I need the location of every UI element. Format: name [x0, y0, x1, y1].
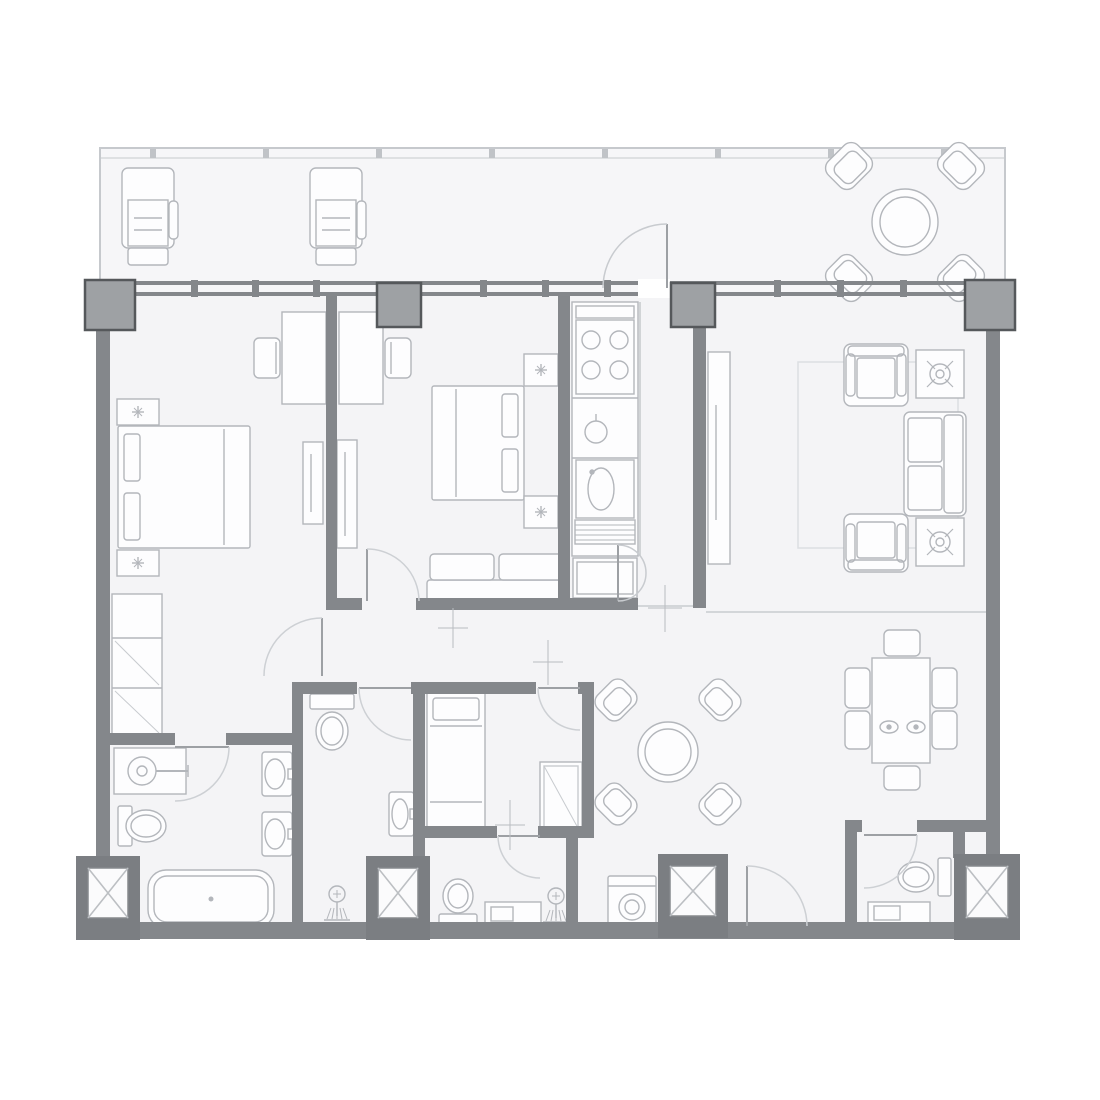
bed-bedroom-2	[432, 386, 524, 500]
nightstand-2	[117, 550, 159, 576]
sink-bathroom-1b	[262, 812, 294, 856]
armchair-2	[844, 514, 908, 572]
floor-plan-drawing	[0, 0, 1100, 1100]
nightstand-3	[524, 354, 558, 386]
closet-bedroom-1	[112, 594, 162, 736]
bed-bedroom-3	[427, 692, 485, 832]
wardrobe-bedroom-2	[337, 440, 357, 548]
nightstand-1	[117, 399, 159, 425]
sink-bathroom-1a	[262, 752, 294, 796]
cabinet-bedroom-3	[540, 762, 582, 832]
wardrobe-bedroom-1	[303, 442, 323, 524]
wardrobe-living	[708, 352, 730, 564]
bathtub-bathroom-1	[148, 870, 274, 928]
armchair-1	[844, 344, 908, 406]
nightstand-4	[524, 496, 558, 528]
shaft	[76, 856, 140, 940]
sofa-living	[904, 412, 966, 516]
shaft	[366, 856, 430, 940]
bed-master	[118, 426, 250, 548]
side-table-2	[916, 518, 964, 566]
kitchen-unit	[572, 302, 638, 598]
sink-bathroom-2	[389, 792, 416, 836]
shelf-powder-room	[868, 902, 930, 924]
vanity-bathroom-1	[114, 748, 188, 794]
floor-plan-figure	[0, 0, 1100, 1100]
side-table-1	[916, 350, 964, 398]
shaft	[954, 854, 1020, 940]
floor-plan-page	[0, 0, 1100, 1100]
washing-machine	[608, 876, 656, 928]
shaft	[658, 854, 728, 938]
